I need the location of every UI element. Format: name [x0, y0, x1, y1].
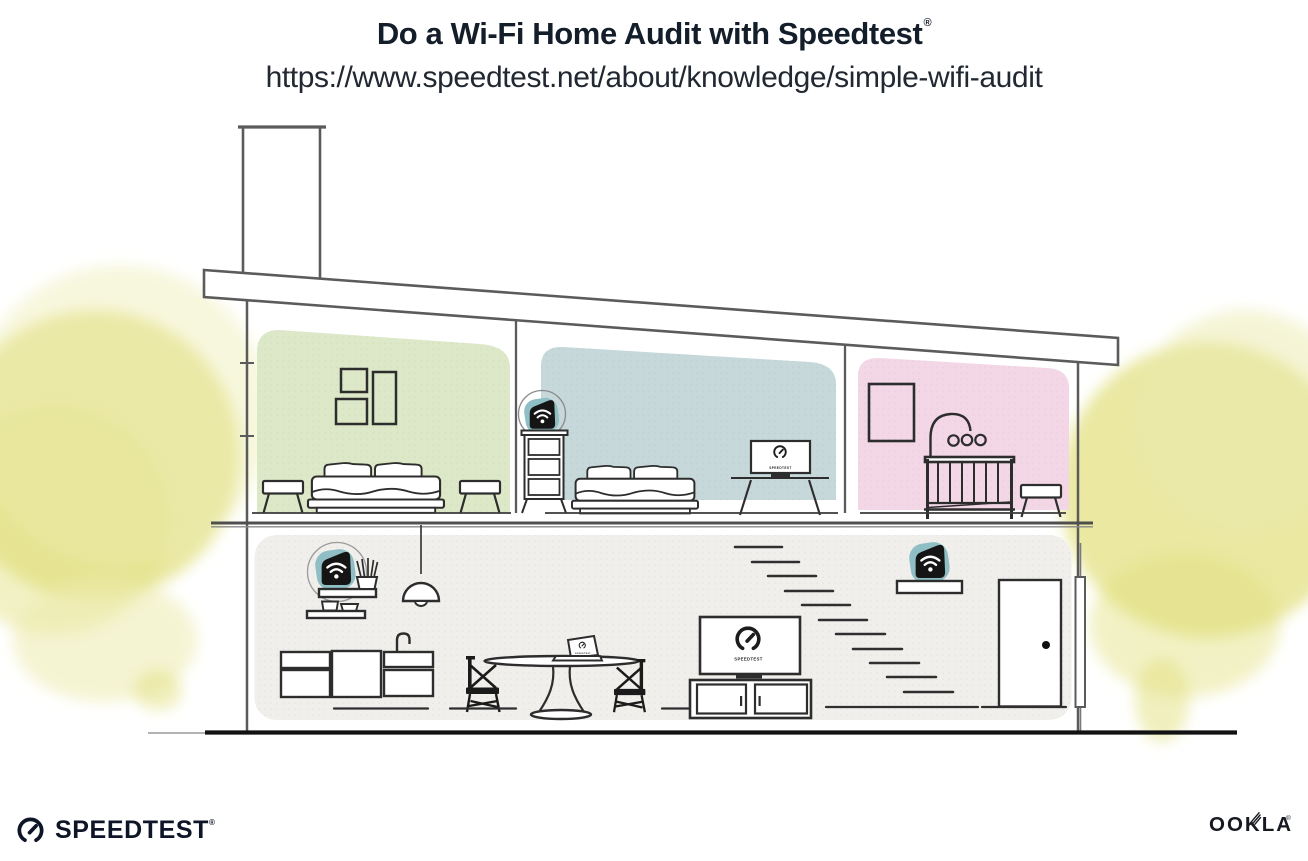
speedtest-wordmark-text: SPEEDTEST [55, 816, 209, 844]
dresser [522, 431, 568, 514]
house-illustration: SPEEDTEST [0, 0, 1308, 861]
door [999, 580, 1061, 707]
living-tv-label: SPEEDTEST [734, 657, 763, 662]
infographic-canvas: Do a Wi-Fi Home Audit with Speedtest® ht… [0, 0, 1308, 861]
speedtest-wordmark: SPEEDTEST® [55, 816, 216, 845]
title-text: Do a Wi-Fi Home Audit with Speedtest [377, 16, 923, 51]
speedtest-gauge-icon [15, 815, 46, 846]
ookla-logo: OOKLA ® [1209, 812, 1295, 843]
page-title: Do a Wi-Fi Home Audit with Speedtest® [0, 16, 1308, 52]
nursery-pink [858, 358, 1069, 519]
chimney [238, 127, 326, 278]
ground-line [148, 733, 1237, 734]
left-tree [0, 265, 270, 710]
registered-mark: ® [923, 17, 931, 29]
bedroom-green [252, 330, 511, 513]
ookla-registered-mark: ® [1286, 814, 1291, 822]
media-console [690, 680, 811, 718]
ookla-wordmark: OOKLA ® [1209, 812, 1295, 838]
speedtest-registered-mark: ® [209, 818, 216, 827]
laptop-label: SPEEDTEST [575, 653, 591, 655]
door-knob [1042, 641, 1050, 649]
right-tree [1060, 310, 1308, 742]
living-tv: SPEEDTEST [700, 617, 800, 679]
speedtest-logo: SPEEDTEST® [15, 815, 216, 846]
header: Do a Wi-Fi Home Audit with Speedtest® ht… [0, 16, 1308, 95]
bedroom-blue: SPEEDTEST [519, 347, 839, 515]
ground-floor: SPEEDTEST SPEEDTEST [255, 525, 1072, 720]
bedroom-monitor-label: SPEEDTEST [769, 466, 792, 470]
article-url: https://www.speedtest.net/about/knowledg… [0, 61, 1308, 95]
living-shelf [897, 581, 962, 593]
